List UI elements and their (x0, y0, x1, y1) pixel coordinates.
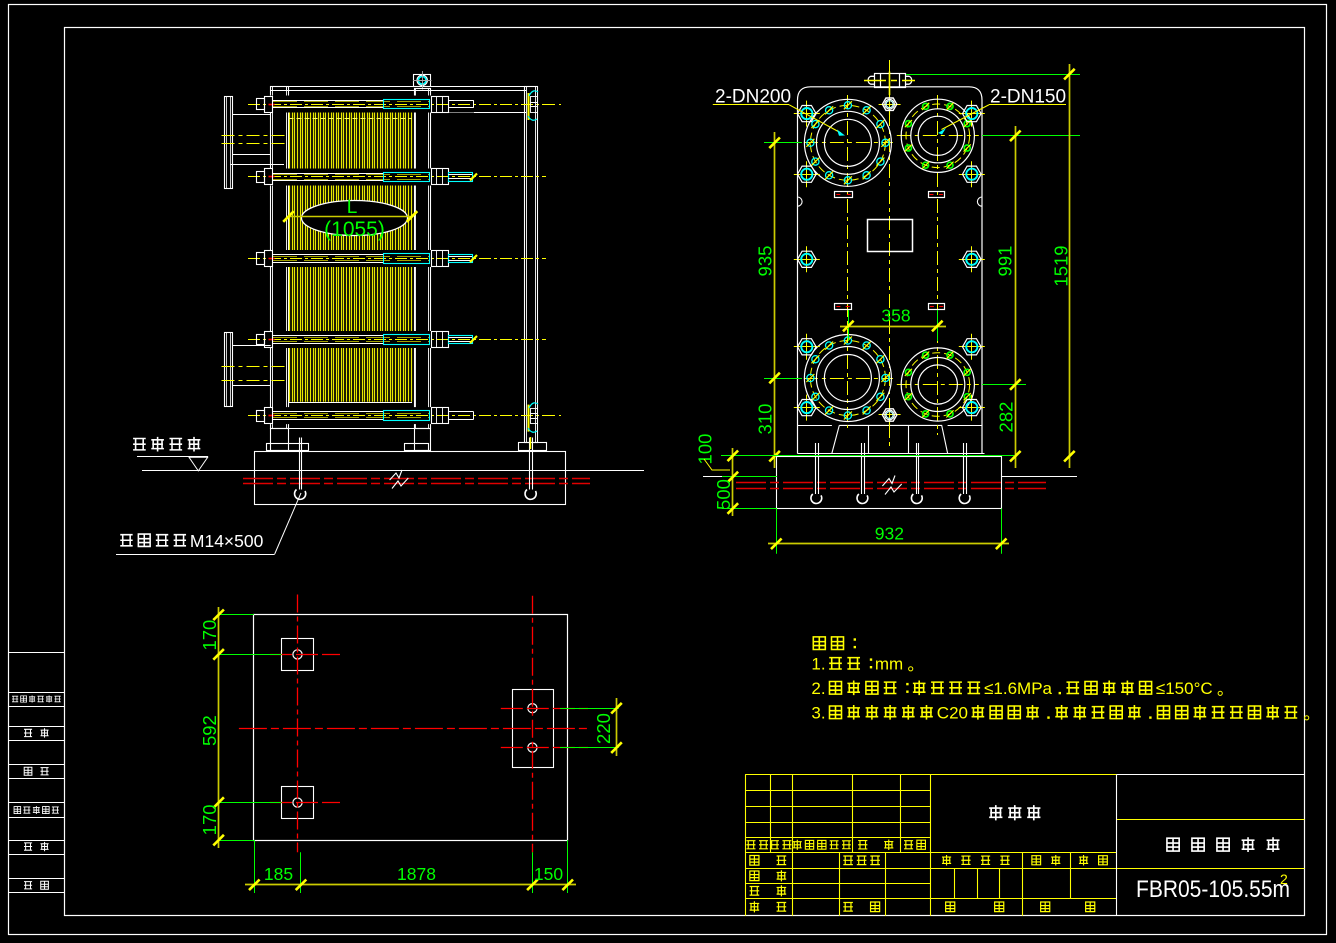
svg-text:185: 185 (264, 864, 293, 884)
svg-text:C20: C20 (937, 704, 968, 723)
svg-text:≤150°C: ≤150°C (1156, 679, 1213, 698)
svg-text:170: 170 (199, 620, 220, 651)
svg-text:2.: 2. (811, 679, 825, 698)
svg-text:3.: 3. (811, 704, 825, 723)
svg-text:mm: mm (875, 655, 903, 674)
svg-text:≤1.6MPa: ≤1.6MPa (984, 679, 1052, 698)
svg-text:L: L (347, 197, 358, 218)
svg-text:358: 358 (881, 306, 910, 326)
svg-text:1878: 1878 (397, 864, 436, 884)
svg-text:935: 935 (755, 246, 776, 277)
svg-text:170: 170 (199, 804, 220, 835)
svg-text:310: 310 (755, 404, 776, 435)
svg-text:M14×500: M14×500 (190, 531, 264, 551)
svg-text:932: 932 (875, 524, 904, 544)
svg-text:220: 220 (593, 713, 614, 744)
svg-text:592: 592 (199, 715, 220, 746)
svg-text:500: 500 (713, 479, 734, 510)
svg-text:(1055): (1055) (324, 218, 385, 241)
svg-text:150: 150 (534, 864, 563, 884)
svg-text:2: 2 (1280, 871, 1288, 887)
svg-text:991: 991 (995, 246, 1016, 277)
svg-text:1.: 1. (811, 655, 825, 674)
svg-text:282: 282 (996, 402, 1017, 433)
svg-text:FBR05-105.55m: FBR05-105.55m (1136, 876, 1290, 903)
svg-text:1519: 1519 (1051, 245, 1072, 286)
